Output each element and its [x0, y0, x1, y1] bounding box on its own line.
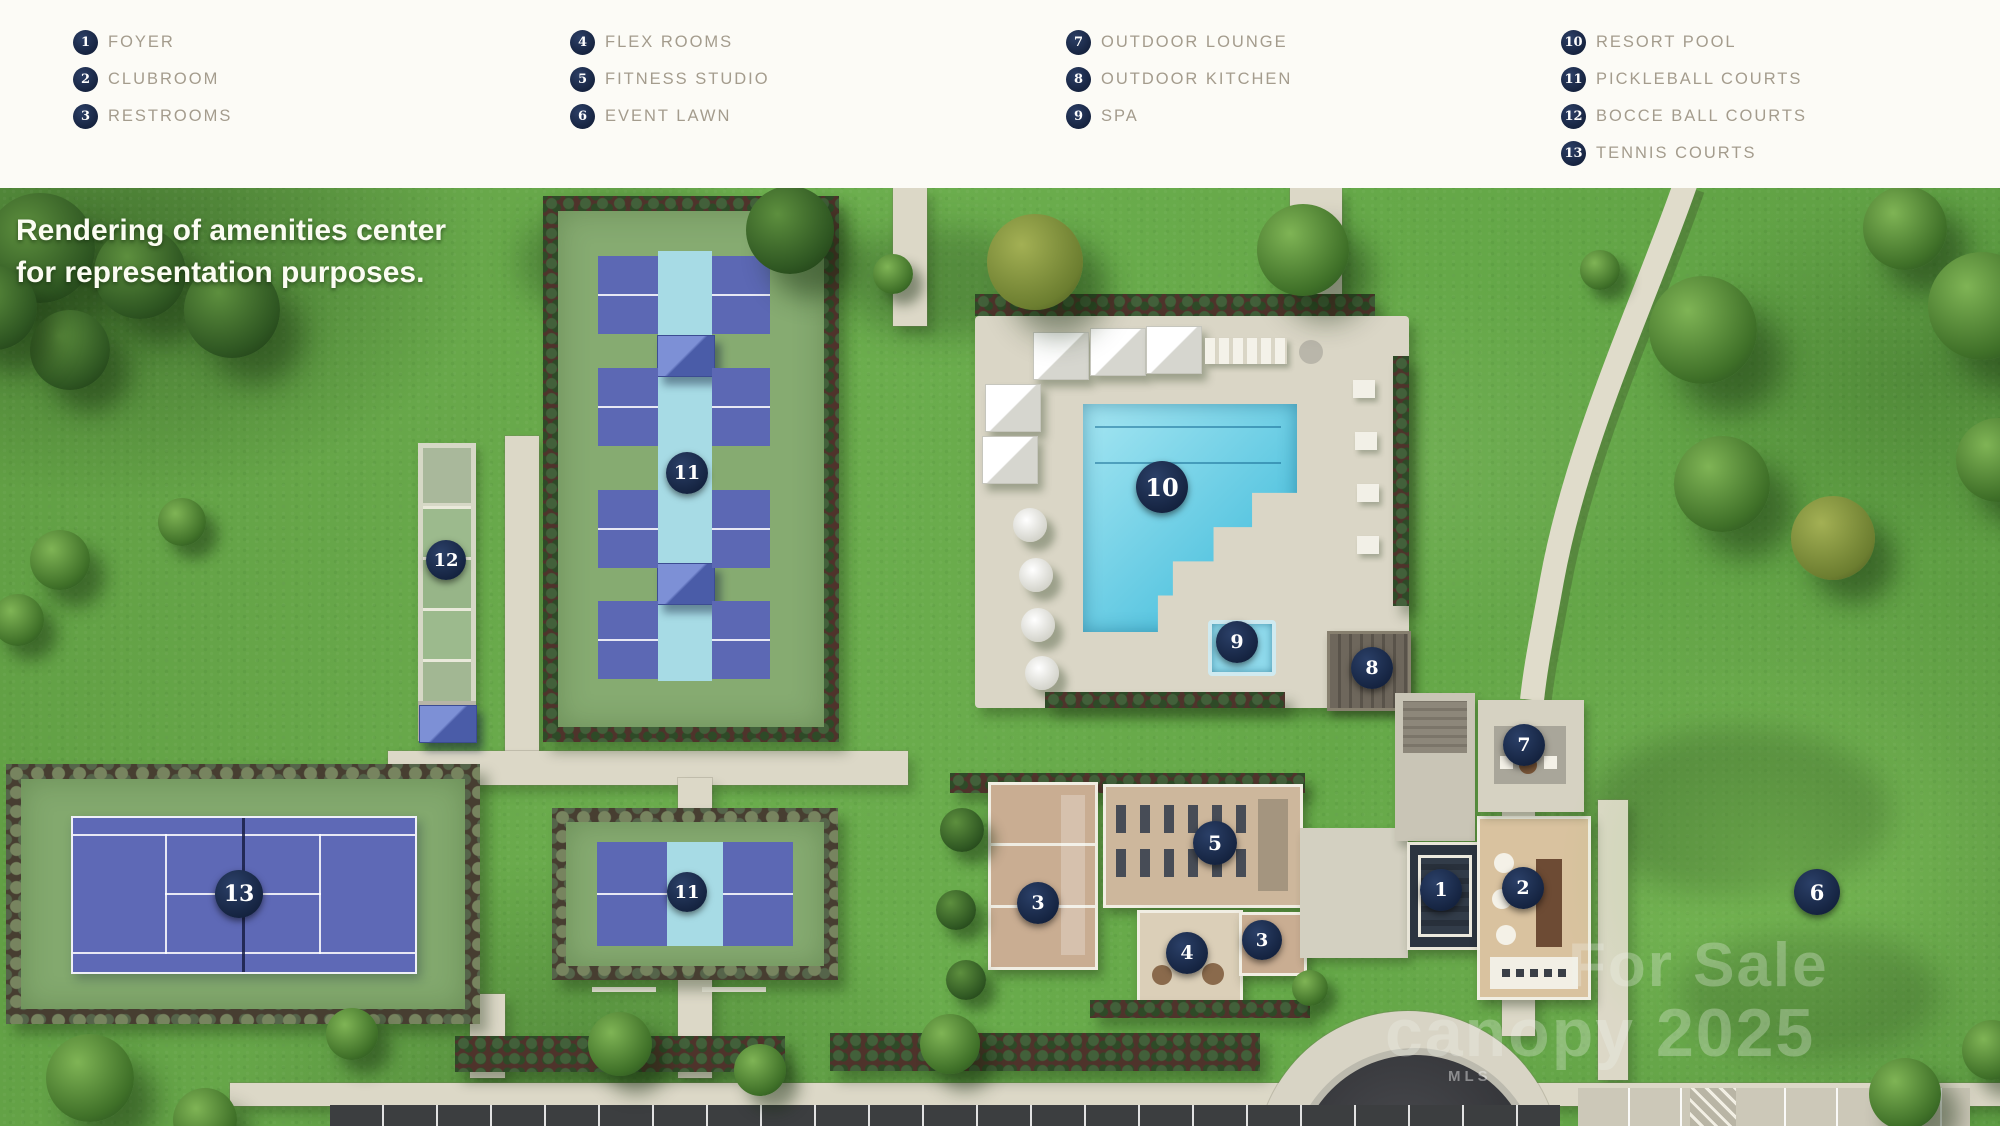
pickleball-half: [712, 256, 770, 334]
tree: [746, 188, 834, 274]
watermark-canopy: canopy 2025: [1385, 994, 1815, 1072]
legend-label: OUTDOOR KITCHEN: [1101, 70, 1292, 89]
resort-pool: [1083, 404, 1297, 632]
shade-canopy: [419, 705, 477, 743]
legend-item: 3RESTROOMS: [73, 104, 232, 129]
legend-number-badge: 7: [1066, 30, 1091, 55]
tree: [734, 1044, 786, 1096]
legend-number-badge: 11: [1561, 67, 1586, 92]
legend-number-badge: 5: [570, 67, 595, 92]
bocce-lane-segment: [423, 659, 471, 702]
map-marker-12: 12: [426, 540, 466, 580]
tree: [940, 808, 984, 852]
legend-item: 8OUTDOOR KITCHEN: [1066, 67, 1292, 92]
tree: [1649, 276, 1757, 384]
bocce-courts: [418, 443, 476, 741]
shade-canopy: [657, 563, 715, 605]
map-marker-11: 11: [666, 452, 708, 494]
legend-label: BOCCE BALL COURTS: [1596, 107, 1807, 126]
legend-column-3: 7OUTDOOR LOUNGE8OUTDOOR KITCHEN9SPA: [1066, 30, 1292, 129]
pickleball-half: [712, 490, 770, 568]
legend-item: 1FOYER: [73, 30, 232, 55]
bocce-lane-segment: [423, 608, 471, 659]
legend-number-badge: 6: [570, 104, 595, 129]
pickleball-half: [598, 601, 658, 679]
map-marker-7: 7: [1503, 724, 1545, 766]
legend-item: 6EVENT LAWN: [570, 104, 770, 129]
lounge-chair-row: [1205, 338, 1287, 364]
map-marker-3: 3: [1242, 920, 1282, 960]
legend-item: 2CLUBROOM: [73, 67, 232, 92]
parking-hatch: [1690, 1088, 1736, 1126]
map-marker-2: 2: [1502, 867, 1544, 909]
tree: [1257, 204, 1349, 296]
tree-shadow: [1590, 728, 1890, 898]
crosswalk-dash: [592, 987, 656, 992]
tree: [158, 498, 206, 546]
lounger: [1355, 432, 1377, 450]
map-marker-5: 5: [1193, 821, 1237, 865]
tree: [1674, 436, 1770, 532]
map-marker-11: 11: [667, 872, 707, 912]
breezeway-deck: [1300, 828, 1408, 958]
lounger: [1353, 380, 1375, 398]
tree: [0, 594, 44, 646]
deck-table: [1299, 340, 1323, 364]
legend-column-1: 1FOYER2CLUBROOM3RESTROOMS: [73, 30, 232, 129]
map-disclaimer-line2: for representation purposes.: [16, 252, 446, 294]
pickleball-half: [723, 842, 793, 946]
tree: [588, 1012, 652, 1076]
legend-number-badge: 4: [570, 30, 595, 55]
umbrella: [1021, 608, 1055, 642]
walkway-west-vertical: [505, 436, 539, 766]
tree: [1956, 418, 2000, 502]
tree: [1791, 496, 1875, 580]
legend-item: 9SPA: [1066, 104, 1292, 129]
legend-label: RESORT POOL: [1596, 33, 1737, 52]
tree: [1928, 252, 2000, 360]
cabana: [1146, 326, 1202, 374]
tree: [987, 214, 1083, 310]
watermark-mls: MLS: [1448, 1068, 1492, 1085]
shade-canopy: [657, 335, 715, 377]
map-disclaimer-line1: Rendering of amenities center: [16, 210, 446, 252]
lounger: [1357, 484, 1379, 502]
tree: [46, 1034, 134, 1122]
cabana: [982, 436, 1038, 484]
legend-label: TENNIS COURTS: [1596, 144, 1756, 163]
map-marker-1: 1: [1420, 869, 1462, 911]
pickleball-half: [712, 601, 770, 679]
pickleball-half: [598, 368, 658, 446]
tree: [946, 960, 986, 1000]
legend-number-badge: 1: [73, 30, 98, 55]
cabana: [1090, 328, 1146, 376]
legend-label: EVENT LAWN: [605, 107, 731, 126]
lounger: [1357, 536, 1379, 554]
map-marker-3: 3: [1017, 882, 1059, 924]
legend-item: 4FLEX ROOMS: [570, 30, 770, 55]
legend-column-2: 4FLEX ROOMS5FITNESS STUDIO6EVENT LAWN: [570, 30, 770, 129]
legend-label: CLUBROOM: [108, 70, 219, 89]
legend-label: RESTROOMS: [108, 107, 232, 126]
legend-item: 13TENNIS COURTS: [1561, 141, 1807, 166]
legend-label: FLEX ROOMS: [605, 33, 733, 52]
legend-item: 11PICKLEBALL COURTS: [1561, 67, 1807, 92]
legend-item: 10RESORT POOL: [1561, 30, 1807, 55]
tree: [30, 530, 90, 590]
tree: [1292, 970, 1328, 1006]
cabana: [1033, 332, 1089, 380]
pickleball-half: [712, 368, 770, 446]
map-marker-6: 6: [1794, 869, 1840, 915]
tree: [326, 1008, 378, 1060]
restrooms-wing: [988, 782, 1098, 970]
tree: [1869, 1058, 1941, 1126]
tree: [873, 254, 913, 294]
legend-number-badge: 10: [1561, 30, 1586, 55]
map-marker-9: 9: [1216, 621, 1258, 663]
cabana: [985, 384, 1041, 432]
legend-item: 7OUTDOOR LOUNGE: [1066, 30, 1292, 55]
umbrella: [1019, 558, 1053, 592]
tree: [173, 1088, 237, 1126]
legend-number-badge: 13: [1561, 141, 1586, 166]
legend-item: 5FITNESS STUDIO: [570, 67, 770, 92]
legend-label: FITNESS STUDIO: [605, 70, 770, 89]
south-garden-bed: [1090, 1000, 1310, 1018]
crosswalk-dash: [702, 987, 766, 992]
bocce-lane-segment: [423, 448, 471, 503]
umbrella: [1013, 508, 1047, 542]
rear-terrace: [1395, 693, 1475, 841]
pickleball-half: [598, 490, 658, 568]
umbrella: [1025, 656, 1059, 690]
parking-row: [330, 1105, 1560, 1126]
legend-number-badge: 12: [1561, 104, 1586, 129]
map-marker-8: 8: [1351, 647, 1393, 689]
tree: [30, 310, 110, 390]
legend-label: OUTDOOR LOUNGE: [1101, 33, 1288, 52]
deck-hedge-east: [1393, 356, 1409, 606]
tree: [1580, 250, 1620, 290]
tree: [1962, 1020, 2000, 1080]
pickleball-half: [597, 842, 667, 946]
deck-hedge-south: [1045, 692, 1285, 708]
tree: [1863, 188, 1947, 270]
legend-number-badge: 9: [1066, 104, 1091, 129]
legend-label: SPA: [1101, 107, 1139, 126]
map-marker-4: 4: [1166, 932, 1208, 974]
legend-column-4: 10RESORT POOL11PICKLEBALL COURTS12BOCCE …: [1561, 30, 1807, 166]
watermark-for-sale: For Sale: [1568, 930, 1829, 1001]
legend-number-badge: 2: [73, 67, 98, 92]
sidewalk-planter: [830, 1033, 1260, 1071]
site-plan-map: Rendering of amenities center for repres…: [0, 188, 2000, 1126]
legend-band: 1FOYER2CLUBROOM3RESTROOMS 4FLEX ROOMS5FI…: [0, 0, 2000, 188]
map-marker-13: 13: [215, 870, 263, 918]
map-disclaimer: Rendering of amenities center for repres…: [16, 210, 446, 294]
legend-number-badge: 3: [73, 104, 98, 129]
tree: [920, 1014, 980, 1074]
map-marker-10: 10: [1136, 461, 1188, 513]
pool-deck: [975, 316, 1409, 708]
legend-item: 12BOCCE BALL COURTS: [1561, 104, 1807, 129]
legend-label: PICKLEBALL COURTS: [1596, 70, 1802, 89]
legend-label: FOYER: [108, 33, 175, 52]
pickleball-half: [598, 256, 658, 334]
legend-number-badge: 8: [1066, 67, 1091, 92]
tree: [936, 890, 976, 930]
